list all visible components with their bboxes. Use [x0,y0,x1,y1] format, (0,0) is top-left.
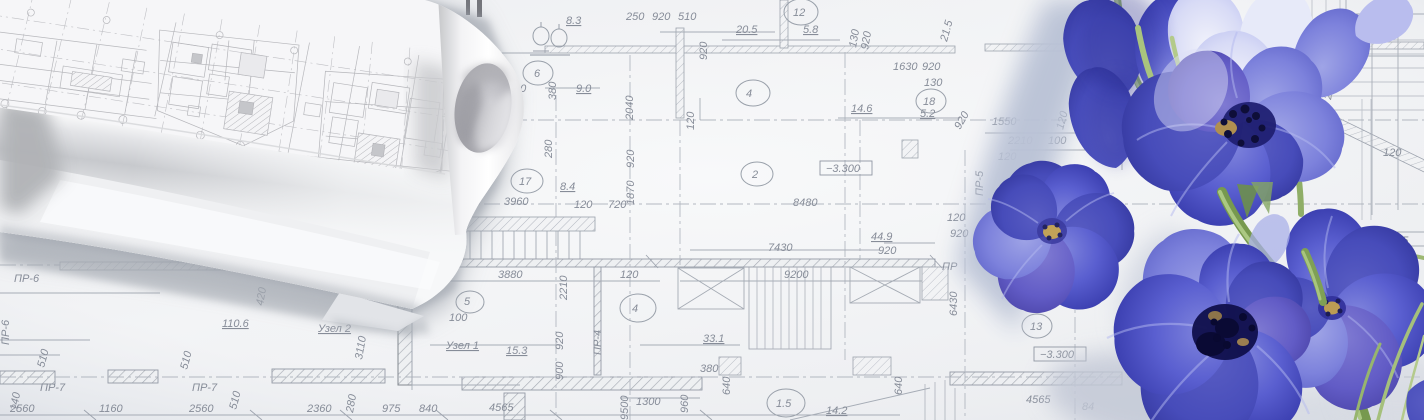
svg-text:900: 900 [554,361,566,380]
svg-text:120: 120 [620,269,639,281]
svg-text:3960: 3960 [504,196,529,208]
svg-text:920: 920 [625,149,637,168]
svg-text:−3.300: −3.300 [826,163,861,175]
svg-text:920: 920 [652,11,671,23]
svg-text:640: 640 [721,376,733,395]
svg-text:5.2: 5.2 [920,108,935,120]
svg-text:100: 100 [449,312,468,324]
svg-text:15.3: 15.3 [506,345,528,357]
svg-text:13: 13 [1030,321,1043,333]
svg-text:7430: 7430 [768,242,793,254]
svg-text:2040: 2040 [624,95,636,121]
svg-text:975: 975 [382,403,401,415]
svg-text:1160: 1160 [99,403,124,415]
svg-text:9500: 9500 [619,395,631,420]
svg-text:640: 640 [893,376,905,395]
svg-text:14.6: 14.6 [851,103,873,115]
svg-text:920: 920 [878,245,897,257]
svg-text:6430: 6430 [948,291,960,316]
svg-text:8480: 8480 [793,197,818,209]
svg-text:110.6: 110.6 [222,318,250,330]
svg-text:3880: 3880 [498,269,523,281]
svg-text:380: 380 [700,363,719,375]
svg-text:17: 17 [519,176,532,188]
svg-text:−3.300: −3.300 [1040,349,1075,361]
svg-text:130: 130 [924,77,943,89]
svg-text:2360: 2360 [306,403,332,415]
svg-text:4: 4 [746,88,752,100]
svg-text:1870: 1870 [625,180,637,205]
svg-text:5: 5 [464,296,471,308]
svg-text:5.8: 5.8 [803,24,819,36]
svg-text:12: 12 [793,7,805,19]
svg-text:510: 510 [678,11,697,23]
svg-text:44.9: 44.9 [871,231,892,243]
svg-text:8.3: 8.3 [566,15,582,27]
svg-text:8.4: 8.4 [560,181,575,193]
svg-text:9200: 9200 [784,269,809,281]
svg-text:920: 920 [554,331,566,350]
svg-text:4: 4 [632,303,638,315]
svg-text:6: 6 [534,68,541,80]
svg-text:920: 920 [698,41,710,60]
svg-text:1.5: 1.5 [776,398,792,410]
svg-text:920: 920 [922,61,941,73]
svg-text:ПР-6: ПР-6 [14,273,40,285]
svg-text:ПР-7: ПР-7 [40,382,66,394]
svg-text:280: 280 [543,139,555,159]
svg-text:120: 120 [1383,147,1402,159]
svg-text:ПР-6: ПР-6 [0,319,12,345]
svg-text:2560: 2560 [188,403,214,415]
svg-text:Узел 1: Узел 1 [445,340,479,352]
svg-text:14.2: 14.2 [826,405,847,417]
svg-text:18: 18 [923,96,936,108]
svg-text:120: 120 [574,199,593,211]
svg-text:9.0: 9.0 [576,83,592,95]
svg-text:2210: 2210 [558,275,570,301]
svg-text:250: 250 [625,11,645,23]
svg-text:120: 120 [685,111,697,130]
svg-text:840: 840 [419,403,438,415]
svg-text:ПР-4: ПР-4 [592,330,604,355]
svg-text:33.1: 33.1 [703,333,724,345]
svg-text:1630: 1630 [893,61,918,73]
svg-text:380: 380 [547,81,559,100]
svg-text:20.5: 20.5 [735,24,758,36]
svg-text:ПР-7: ПР-7 [192,382,218,394]
svg-text:1300: 1300 [636,396,661,408]
svg-text:4565: 4565 [489,402,514,414]
svg-text:2: 2 [751,169,758,181]
svg-text:960: 960 [679,394,691,413]
svg-text:ПР: ПР [942,261,958,273]
svg-text:4565: 4565 [1026,394,1051,406]
svg-text:120: 120 [947,212,966,224]
